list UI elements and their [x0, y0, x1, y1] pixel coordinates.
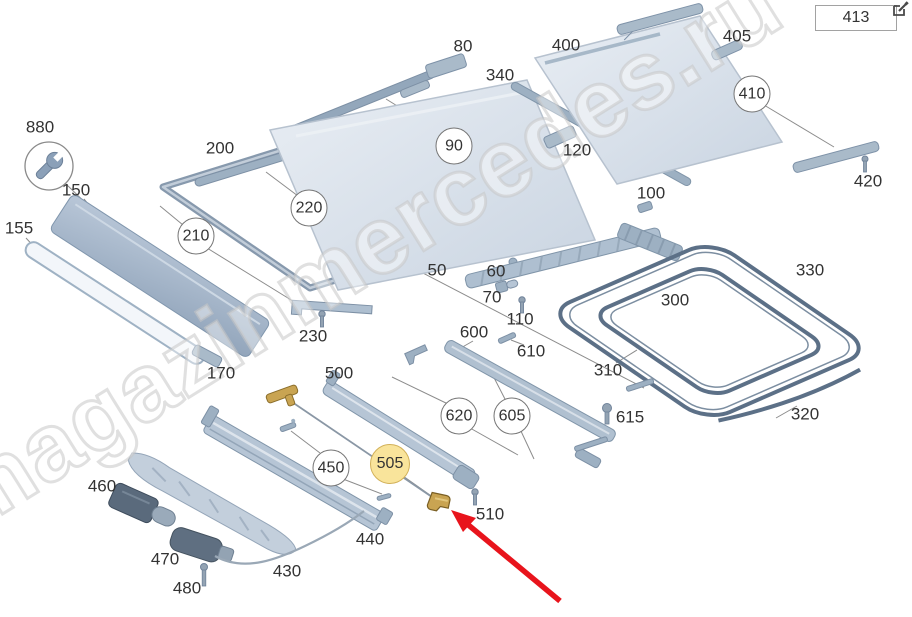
part-screw-230	[319, 311, 325, 327]
part-label-600[interactable]: 600	[460, 324, 488, 341]
part-label-220[interactable]: 220	[291, 190, 328, 227]
part-label-610[interactable]: 610	[517, 343, 545, 360]
figure-ref-box: 413	[815, 5, 897, 31]
part-seals-300-330	[547, 240, 887, 432]
part-gold-tpiece	[265, 384, 301, 412]
part-clip-450b	[377, 493, 392, 500]
part-label-450[interactable]: 450	[313, 450, 350, 487]
part-label-420[interactable]: 420	[854, 173, 882, 190]
part-label-110[interactable]: 110	[506, 311, 533, 328]
part-label-100[interactable]: 100	[637, 185, 665, 202]
part-label-60[interactable]: 60	[487, 263, 506, 280]
part-label-480[interactable]: 480	[173, 580, 201, 597]
part-screw-510	[472, 489, 478, 505]
part-label-505-highlighted[interactable]: 505	[370, 444, 410, 484]
edit-icon[interactable]	[890, 0, 910, 20]
part-label-300[interactable]: 300	[661, 292, 689, 309]
part-label-210[interactable]: 210	[178, 218, 215, 255]
part-label-340[interactable]: 340	[486, 67, 514, 84]
part-pin-615	[603, 404, 612, 425]
exploded-view-drawing	[0, 0, 912, 617]
part-screw-480	[201, 564, 208, 587]
part-label-230[interactable]: 230	[299, 328, 327, 345]
part-clip-610	[498, 332, 516, 344]
part-label-170[interactable]: 170	[207, 365, 235, 382]
part-label-310[interactable]: 310	[594, 362, 622, 379]
part-label-90[interactable]: 90	[436, 128, 473, 165]
part-label-400[interactable]: 400	[552, 37, 580, 54]
part-label-120[interactable]: 120	[563, 142, 591, 159]
part-label-615[interactable]: 615	[616, 409, 644, 426]
part-label-70[interactable]: 70	[483, 289, 502, 306]
part-label-320[interactable]: 320	[791, 406, 819, 423]
part-screw-420	[862, 156, 868, 172]
part-label-405[interactable]: 405	[723, 28, 751, 45]
parts-diagram-page: magazinmercedes.ru 880 150 155 200 210 2…	[0, 0, 912, 617]
part-label-150[interactable]: 150	[62, 182, 90, 199]
part-label-470[interactable]: 470	[151, 551, 179, 568]
part-label-510[interactable]: 510	[476, 506, 504, 523]
part-clip-450a	[278, 418, 297, 432]
part-label-200[interactable]: 200	[206, 140, 234, 157]
part-label-440[interactable]: 440	[356, 531, 384, 548]
part-label-430[interactable]: 430	[273, 563, 301, 580]
part-label-330[interactable]: 330	[796, 262, 824, 279]
part-label-80[interactable]: 80	[454, 38, 473, 55]
part-frame-corner-bracket	[291, 300, 372, 320]
part-slat-605	[574, 436, 608, 451]
part-label-620[interactable]: 620	[441, 398, 478, 435]
part-block-80	[425, 53, 467, 79]
part-label-880[interactable]: 880	[26, 119, 54, 136]
part-label-460[interactable]: 460	[88, 478, 116, 495]
part-label-500[interactable]: 500	[325, 365, 353, 382]
figure-ref-value: 413	[843, 9, 870, 27]
part-clip-100	[637, 201, 653, 213]
part-label-155[interactable]: 155	[5, 220, 33, 237]
part-label-410[interactable]: 410	[734, 76, 771, 113]
part-label-50[interactable]: 50	[428, 262, 447, 279]
part-bracket-600-top	[405, 345, 430, 365]
part-label-605[interactable]: 605	[494, 398, 531, 435]
